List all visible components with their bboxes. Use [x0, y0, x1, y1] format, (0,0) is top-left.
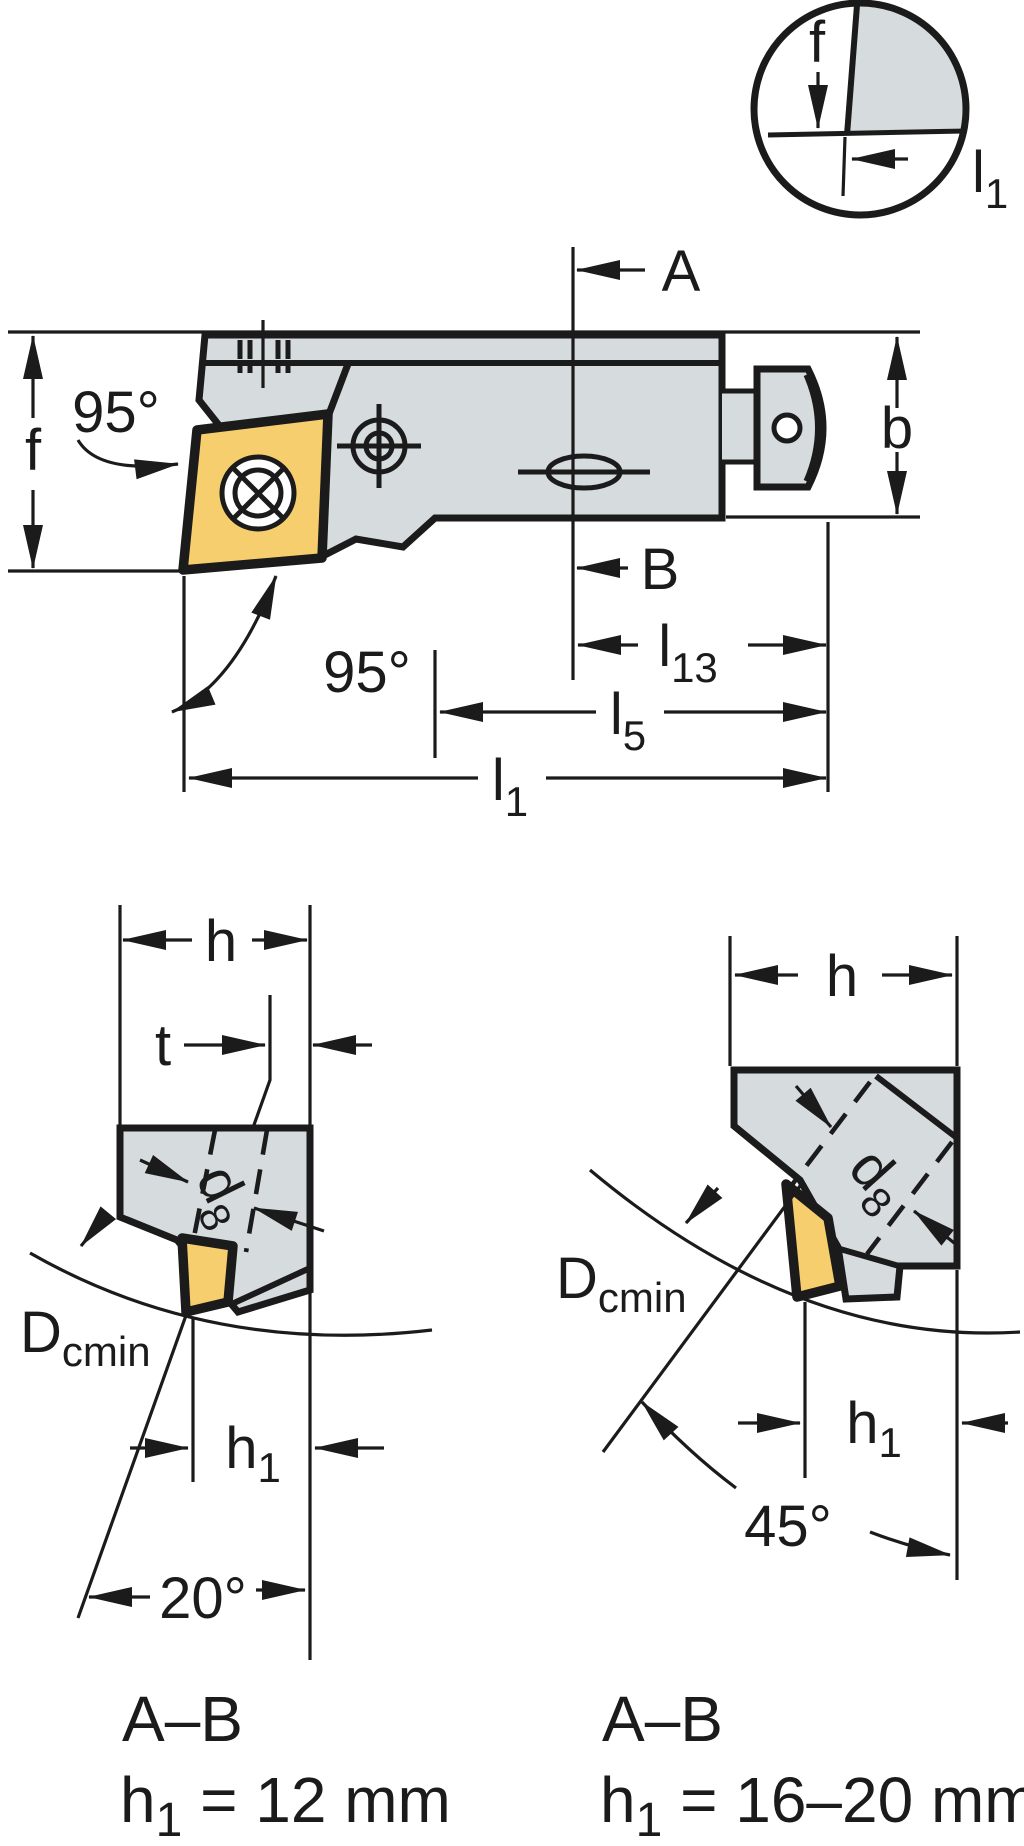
h-label-right: h	[826, 944, 858, 1009]
dcmin-label-left: Dcmin	[20, 1300, 151, 1375]
technical-drawing-page: f l1	[0, 0, 1024, 1846]
dcmin-label-right: Dcmin	[556, 1246, 687, 1321]
l5-label: l5	[610, 682, 646, 759]
dcmin-arrow-left	[81, 1218, 104, 1246]
section-view-right: h d8 Dcmin 45°	[556, 936, 1024, 1846]
dim-f: f	[25, 336, 42, 568]
section-label-b: B	[641, 537, 680, 602]
angle-95-front: 95°	[72, 380, 178, 466]
dim-h-left: h	[123, 909, 307, 974]
b-label: b	[881, 396, 913, 461]
h1-label-left: h1	[225, 1416, 281, 1491]
dim-h-right: h	[735, 944, 952, 1009]
detail-l1-label: l1	[972, 140, 1008, 217]
dcmin-arrow-right	[686, 1188, 718, 1223]
detail-f-label: f	[809, 10, 826, 75]
dim-b: b	[881, 337, 913, 514]
dim-l1: l1	[189, 748, 826, 825]
main-view: A B f b 95° 95° l13	[8, 239, 920, 825]
cutting-insert	[183, 414, 328, 570]
dim-t: t	[155, 1013, 372, 1078]
angle-label-left: 20°	[159, 1566, 247, 1631]
section-view-left: h t d8 Dcmin	[20, 905, 451, 1846]
tip-extension-line	[843, 137, 845, 196]
surface-reference-line	[768, 131, 964, 135]
spec-right: h1 = 16–20 mm	[600, 1764, 1024, 1846]
f-label: f	[25, 418, 42, 483]
tool-holder-drawing: f l1	[0, 0, 1024, 1846]
angle-95-front-label: 95°	[72, 380, 160, 445]
section-insert-left	[182, 1238, 233, 1312]
dim-angle-left: 20°	[89, 1566, 305, 1631]
dim-h1-right: h1	[738, 1302, 1008, 1478]
dim-h1-left: h1	[130, 1318, 384, 1491]
clamp-screw	[722, 369, 823, 487]
insert-tip-shaded-area	[849, 6, 967, 134]
detail-circle: f l1	[754, 3, 1008, 217]
l1-label: l1	[492, 748, 528, 825]
spec-left: h1 = 12 mm	[120, 1764, 451, 1846]
screw-hole	[774, 415, 800, 441]
angle-label-right: 45°	[744, 1494, 832, 1559]
angle-95-pocket-label: 95°	[323, 640, 411, 705]
h-label-left: h	[205, 909, 237, 974]
dim-angle-right: 45°	[642, 1402, 950, 1559]
angle-95-pocket: 95°	[172, 576, 411, 712]
t-label: t	[155, 1013, 171, 1078]
section-label-a: A	[662, 239, 701, 304]
caption-left: A–B	[122, 1683, 243, 1755]
l13-label: l13	[658, 614, 718, 691]
caption-right: A–B	[602, 1683, 723, 1755]
dim-l13: l13	[578, 614, 826, 691]
h1-label-right: h1	[846, 1391, 902, 1466]
